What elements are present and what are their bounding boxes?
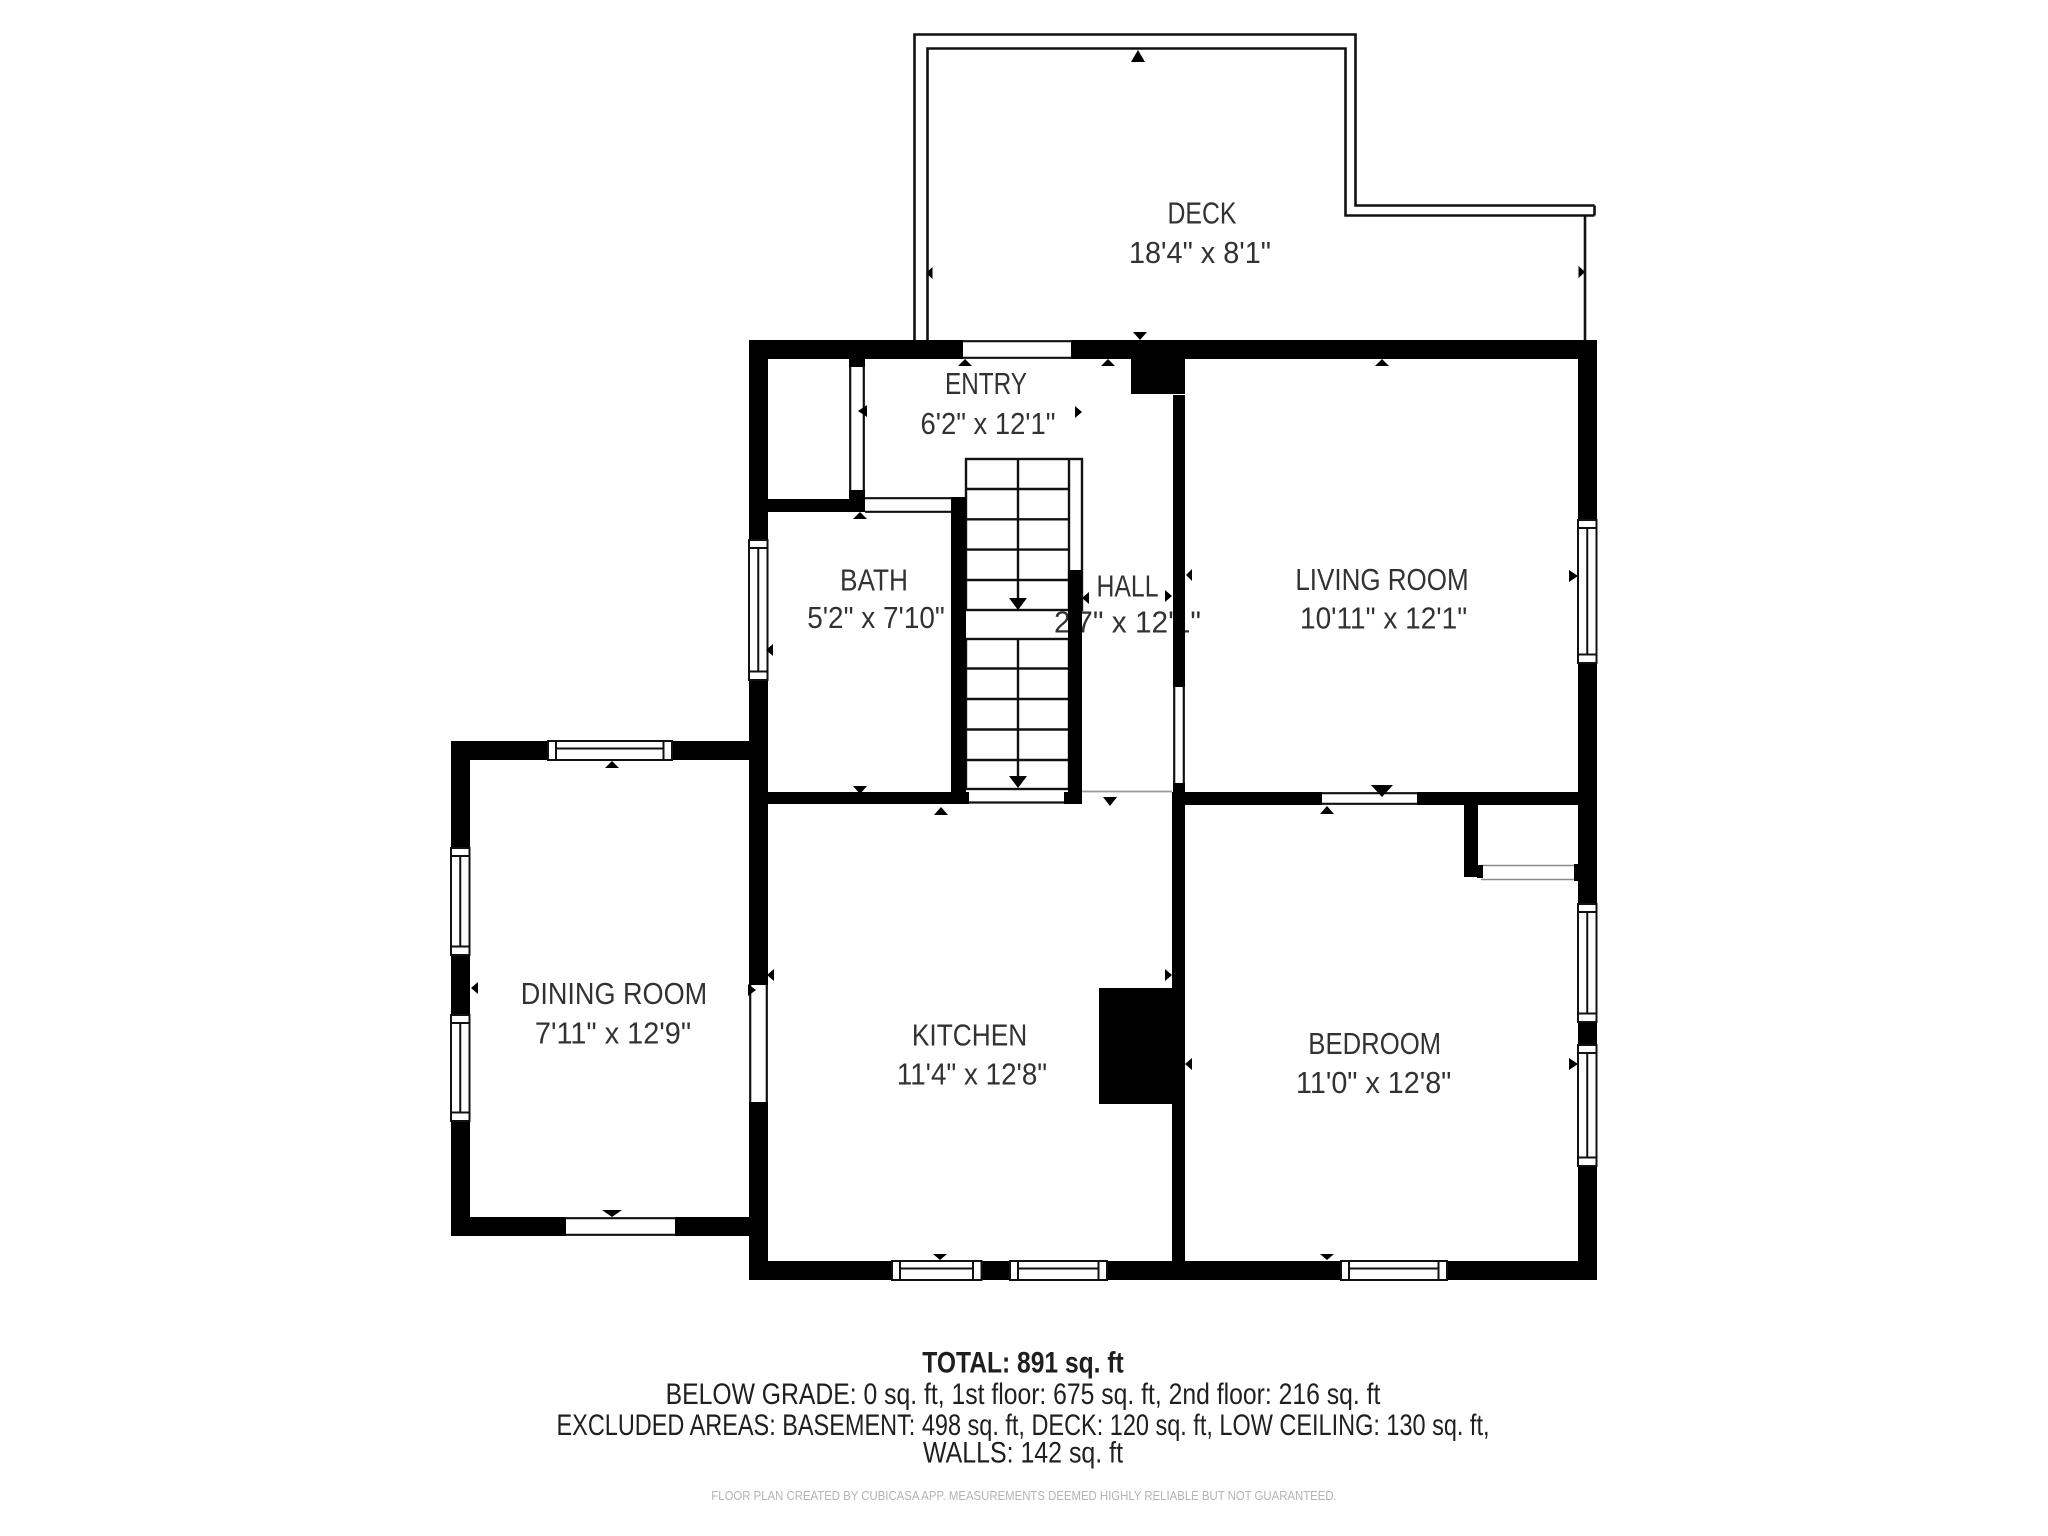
svg-text:KITCHEN: KITCHEN [912,1018,1027,1053]
svg-text:DECK: DECK [1168,196,1237,231]
svg-text:FLOOR PLAN CREATED BY CUBICASA: FLOOR PLAN CREATED BY CUBICASA APP. MEAS… [711,1489,1336,1503]
svg-text:6'2" x 12'1": 6'2" x 12'1" [921,406,1056,441]
svg-text:7'11" x 12'9": 7'11" x 12'9" [535,1016,691,1051]
svg-text:WALLS: 142 sq. ft: WALLS: 142 sq. ft [923,1437,1124,1470]
svg-text:HALL: HALL [1097,568,1159,603]
svg-text:DINING ROOM: DINING ROOM [521,976,707,1011]
svg-text:18'4" x 8'1": 18'4" x 8'1" [1129,235,1271,270]
svg-text:5'2" x 7'10": 5'2" x 7'10" [807,600,945,635]
svg-text:BEDROOM: BEDROOM [1308,1026,1441,1061]
svg-text:10'11" x 12'1": 10'11" x 12'1" [1300,601,1467,636]
svg-text:BELOW GRADE: 0 sq. ft, 1st flo: BELOW GRADE: 0 sq. ft, 1st floor: 675 sq… [666,1378,1381,1411]
svg-text:11'4" x 12'8": 11'4" x 12'8" [897,1056,1047,1091]
svg-text:TOTAL: 891 sq. ft: TOTAL: 891 sq. ft [922,1346,1124,1379]
svg-text:11'0" x 12'8": 11'0" x 12'8" [1296,1065,1451,1100]
svg-text:LIVING ROOM: LIVING ROOM [1295,562,1468,597]
svg-text:ENTRY: ENTRY [945,366,1027,401]
svg-text:BATH: BATH [840,563,908,598]
